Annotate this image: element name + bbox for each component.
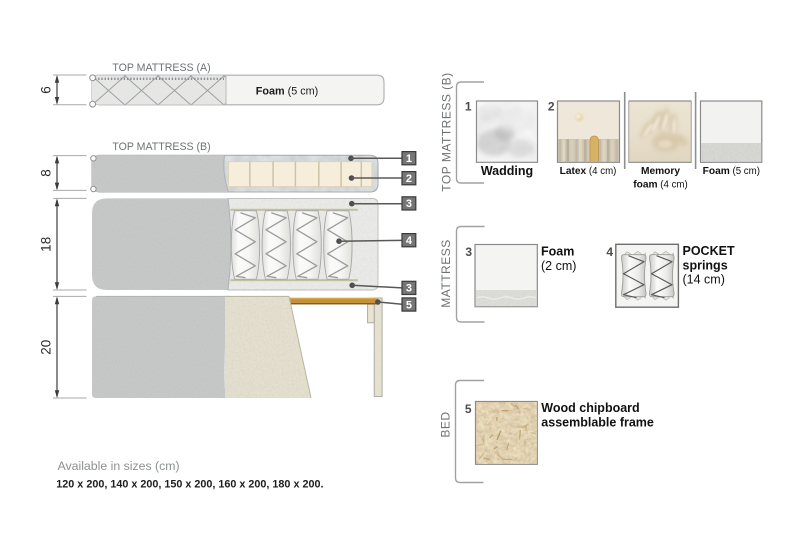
svg-text:(2 cm): (2 cm) xyxy=(541,259,576,273)
svg-text:Foam: Foam xyxy=(541,244,574,258)
svg-text:3: 3 xyxy=(406,198,412,210)
svg-text:6: 6 xyxy=(38,86,53,94)
svg-text:Wadding: Wadding xyxy=(481,164,533,178)
svg-text:Wood chipboard: Wood chipboard xyxy=(541,401,639,415)
svg-text:1: 1 xyxy=(465,100,472,114)
svg-text:assemblable frame: assemblable frame xyxy=(541,415,654,429)
svg-text:(14 cm): (14 cm) xyxy=(683,273,725,287)
svg-text:Memory: Memory xyxy=(641,166,680,177)
svg-text:TOP MATTRESS (B): TOP MATTRESS (B) xyxy=(112,141,210,153)
svg-text:POCKET: POCKET xyxy=(683,244,735,258)
svg-text:TOP MATTRESS (A): TOP MATTRESS (A) xyxy=(112,62,210,74)
svg-text:Foam (5 cm): Foam (5 cm) xyxy=(256,86,318,98)
svg-text:Foam (5 cm): Foam (5 cm) xyxy=(703,166,760,177)
svg-text:Latex (4 cm): Latex (4 cm) xyxy=(560,166,617,177)
svg-text:springs: springs xyxy=(683,258,728,272)
svg-text:2: 2 xyxy=(548,100,555,114)
svg-text:2: 2 xyxy=(406,173,412,185)
svg-text:8: 8 xyxy=(38,169,53,177)
svg-text:120 x 200, 140 x 200, 150 x 20: 120 x 200, 140 x 200, 150 x 200, 160 x 2… xyxy=(56,478,323,490)
svg-text:foam (4 cm): foam (4 cm) xyxy=(633,180,687,191)
svg-text:4: 4 xyxy=(606,245,613,259)
svg-text:18: 18 xyxy=(38,237,53,252)
svg-text:3: 3 xyxy=(406,283,412,295)
svg-text:4: 4 xyxy=(406,235,413,247)
svg-text:3: 3 xyxy=(465,245,472,259)
svg-text:BED: BED xyxy=(439,411,453,437)
svg-text:MATTRESS: MATTRESS xyxy=(439,239,453,307)
svg-text:Available in sizes (cm): Available in sizes (cm) xyxy=(58,459,180,473)
svg-text:5: 5 xyxy=(406,299,412,311)
svg-text:1: 1 xyxy=(406,153,412,165)
svg-text:5: 5 xyxy=(465,402,472,416)
svg-text:20: 20 xyxy=(38,340,53,355)
svg-text:TOP MATTRESS (B): TOP MATTRESS (B) xyxy=(440,72,454,191)
